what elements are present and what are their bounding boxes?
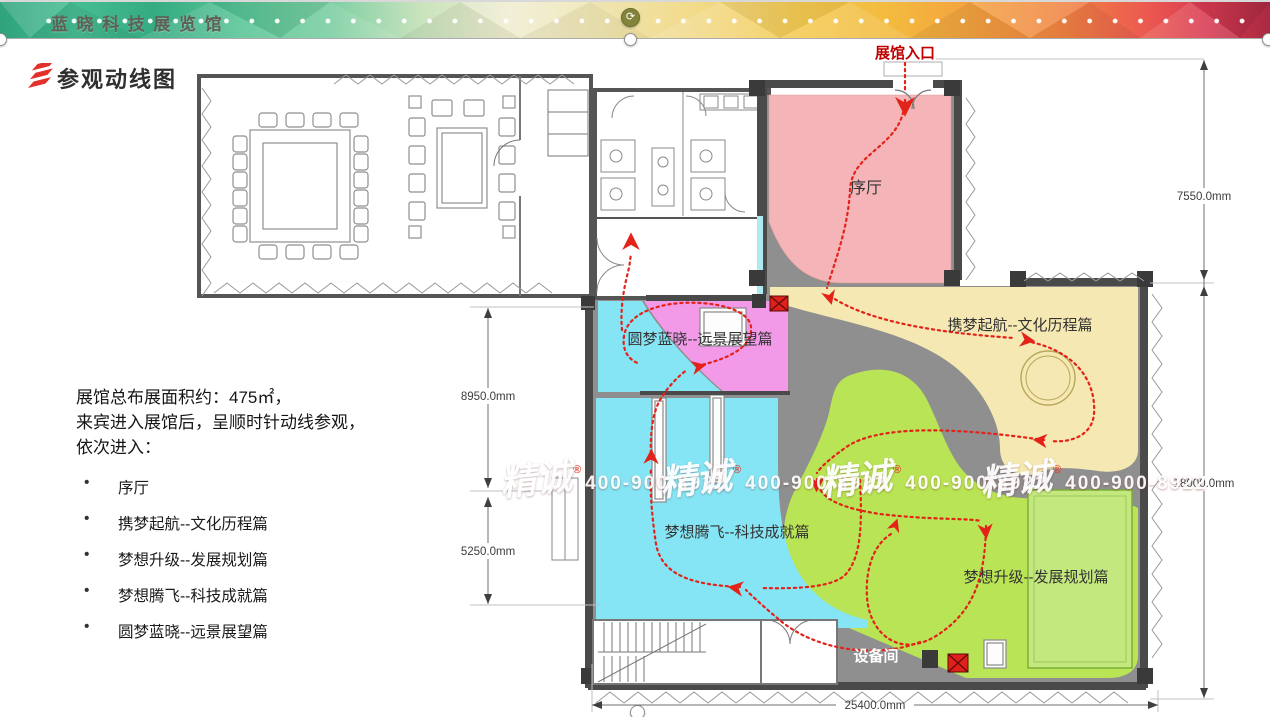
entrance-label: 展馆入口 <box>875 44 935 62</box>
dim-left-bottom: 5250.0mm <box>461 546 515 558</box>
zone-label-upgrade: 梦想升级--发展规划篇 <box>964 568 1109 586</box>
conference-table <box>233 113 368 259</box>
slide: 蓝晓科技展览馆 ⟳ 参观动线图 展馆总布展面积约：475㎡， 来宾进入展馆后，呈… <box>0 0 1270 717</box>
zone-label-vision: 圆梦蓝晓--远景展望篇 <box>628 330 773 348</box>
left-building <box>199 75 591 296</box>
equipment-room-label: 设备间 <box>853 647 898 665</box>
dim-bottom: 25400.0mm <box>845 700 906 712</box>
zone-label-culture: 携梦起航--文化历程篇 <box>948 316 1093 334</box>
dim-right-bottom: 18000.0mm <box>1174 478 1235 490</box>
restroom-block <box>595 90 769 298</box>
zone-label-tech: 梦想腾飞--科技成就篇 <box>665 523 810 541</box>
floor-plan: 7550.0mm 18000.0mm 8950.0mm 5250.0mm 254… <box>0 0 1270 717</box>
dim-right-top: 7550.0mm <box>1177 191 1231 203</box>
zone-label-xuting: 序厅 <box>850 179 882 197</box>
dim-left-top: 8950.0mm <box>461 391 515 403</box>
stairs <box>593 620 837 684</box>
